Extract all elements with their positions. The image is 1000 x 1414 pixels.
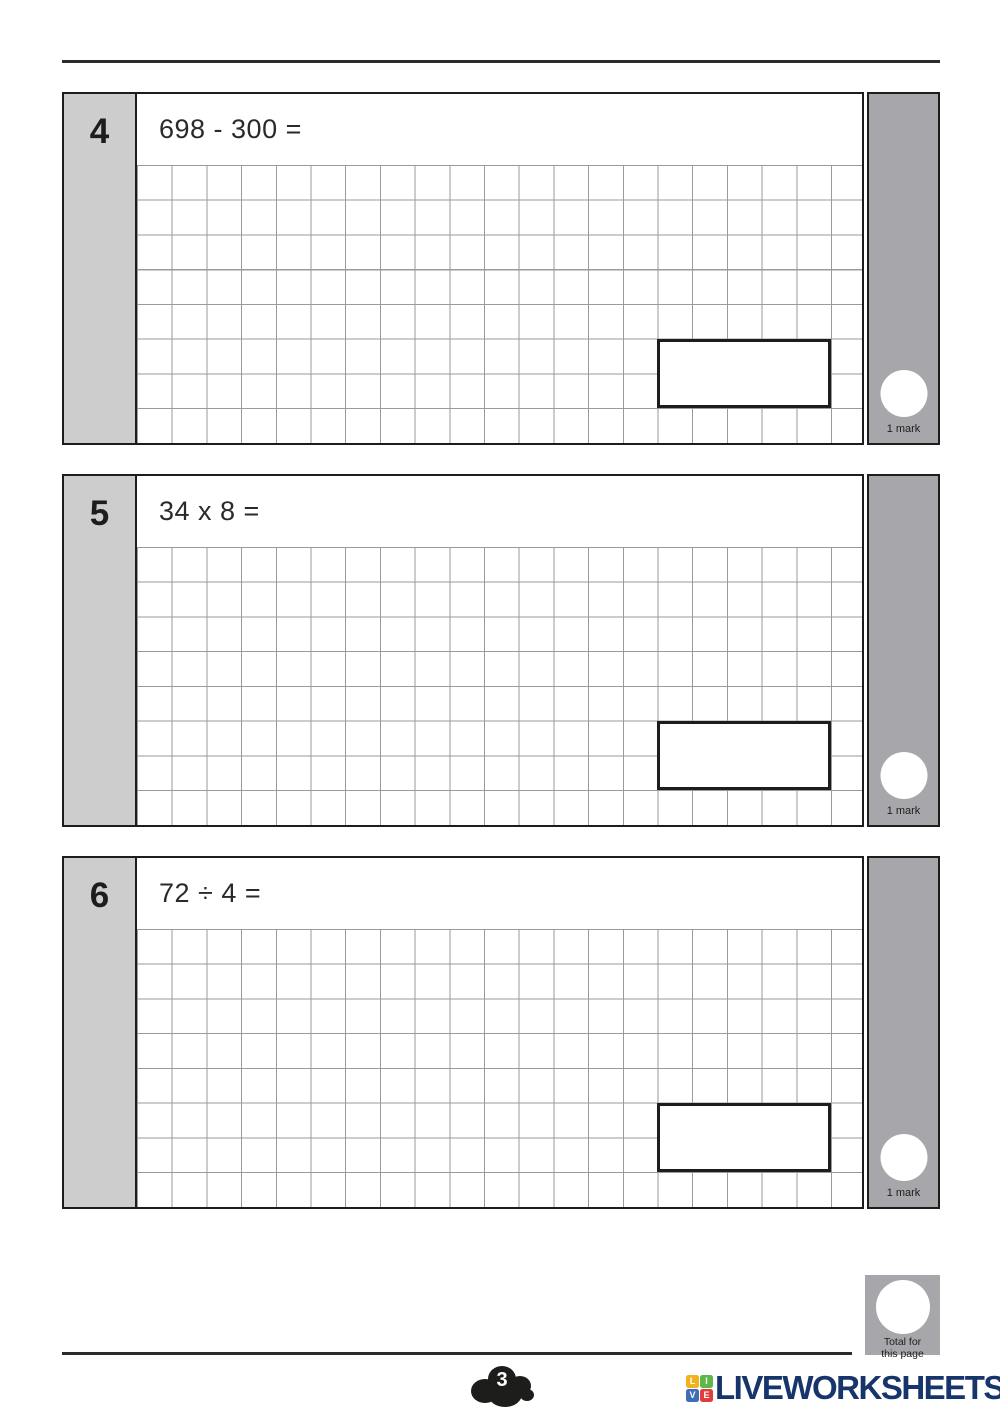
working-grid xyxy=(137,165,862,443)
question-number: 4 xyxy=(62,92,137,445)
question-list: 4 698 - 300 = 1 mark 5 34 x 8 = 1 mark 6 xyxy=(62,92,940,1238)
mark-label: 1 mark xyxy=(869,423,938,435)
mark-circle xyxy=(880,1134,927,1181)
page-number: 3 xyxy=(465,1369,539,1392)
liveworksheets-logo-icon: L I V E xyxy=(686,1375,713,1402)
total-circle xyxy=(876,1280,930,1334)
question-prompt: 34 x 8 = xyxy=(137,476,862,547)
bottom-rule xyxy=(62,1352,852,1355)
working-grid xyxy=(137,547,862,825)
question-number: 5 xyxy=(62,474,137,827)
question-body: 698 - 300 = xyxy=(137,92,864,445)
liveworksheets-logo-text: LIVEWORKSHEETS xyxy=(715,1369,1000,1407)
marks-column: 1 mark xyxy=(867,92,940,445)
question-number: 6 xyxy=(62,856,137,1209)
page-number-cloud-icon: 3 xyxy=(465,1362,539,1410)
working-grid xyxy=(137,929,862,1207)
mark-circle xyxy=(880,370,927,417)
total-label: Total for this page xyxy=(865,1336,940,1360)
answer-box[interactable] xyxy=(657,1103,831,1172)
marks-column: 1 mark xyxy=(867,856,940,1209)
question-block: 4 698 - 300 = 1 mark xyxy=(62,92,940,445)
question-prompt: 698 - 300 = xyxy=(137,94,862,165)
question-block: 6 72 ÷ 4 = 1 mark xyxy=(62,856,940,1209)
question-block: 5 34 x 8 = 1 mark xyxy=(62,474,940,827)
mark-circle xyxy=(880,752,927,799)
question-body: 34 x 8 = xyxy=(137,474,864,827)
mark-label: 1 mark xyxy=(869,1187,938,1199)
top-rule xyxy=(62,60,940,63)
question-prompt: 72 ÷ 4 = xyxy=(137,858,862,929)
mark-label: 1 mark xyxy=(869,805,938,817)
answer-box[interactable] xyxy=(657,339,831,408)
total-for-page-box: Total for this page xyxy=(865,1275,940,1355)
answer-box[interactable] xyxy=(657,721,831,790)
liveworksheets-logo: L I V E LIVEWORKSHEETS xyxy=(686,1369,1000,1407)
question-body: 72 ÷ 4 = xyxy=(137,856,864,1209)
marks-column: 1 mark xyxy=(867,474,940,827)
